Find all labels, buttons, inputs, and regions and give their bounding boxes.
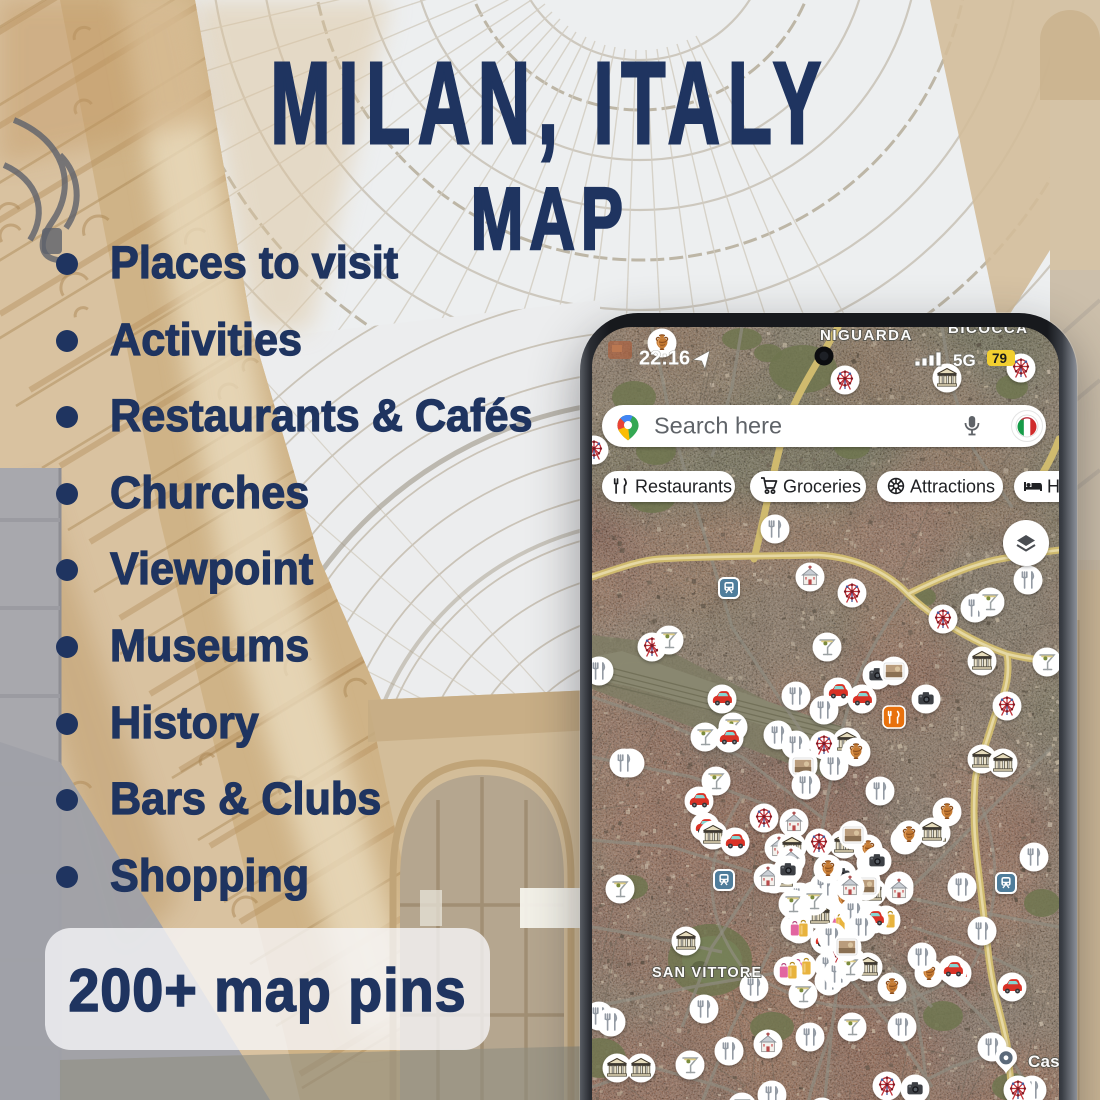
svg-text:Restaurants: Restaurants: [635, 477, 732, 497]
svg-text:Groceries: Groceries: [783, 477, 861, 497]
svg-text:Search here: Search here: [654, 413, 782, 439]
svg-text:5G: 5G: [953, 351, 976, 370]
svg-text:Casc: Casc: [1028, 1052, 1059, 1071]
svg-text:79: 79: [992, 351, 1007, 366]
svg-text:Attractions: Attractions: [910, 477, 995, 497]
svg-text:BICOCCA: BICOCCA: [948, 327, 1029, 337]
svg-text:Hotels: Hotels: [1047, 477, 1059, 497]
svg-text:22:16: 22:16: [639, 348, 690, 370]
svg-text:SAN VITTORE: SAN VITTORE: [652, 965, 762, 981]
svg-text:NIGUARDA: NIGUARDA: [820, 327, 913, 344]
